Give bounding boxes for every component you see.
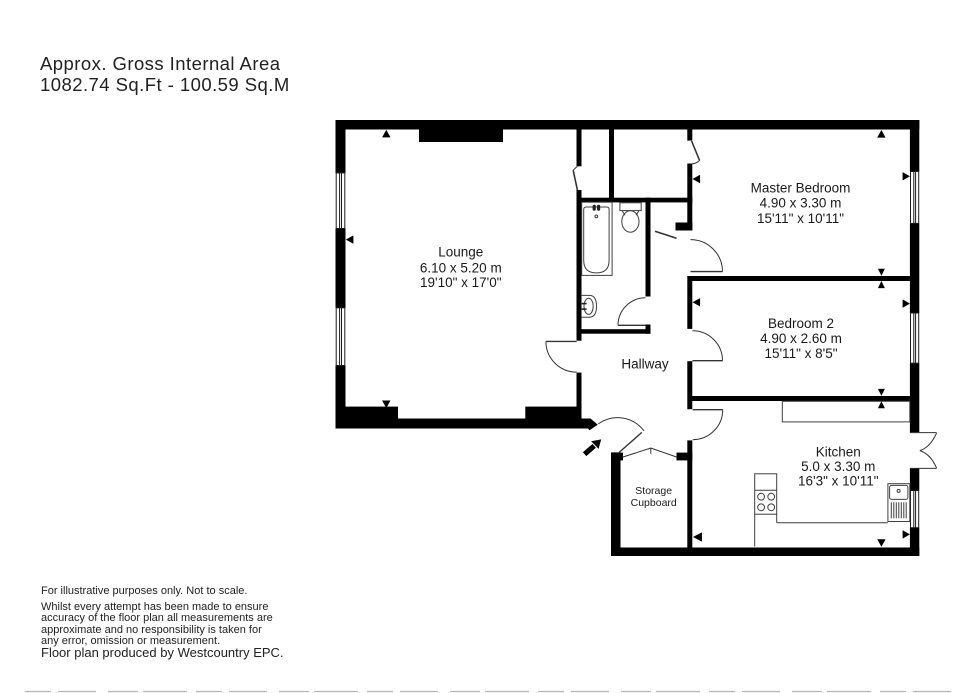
svg-text:4.90 x 3.30 m: 4.90 x 3.30 m <box>760 196 842 211</box>
svg-text:4.90 x 2.60 m: 4.90 x 2.60 m <box>760 331 842 346</box>
svg-text:5.0 x 3.30 m: 5.0 x 3.30 m <box>801 459 875 474</box>
svg-text:16'3" x 10'11": 16'3" x 10'11" <box>798 474 879 489</box>
svg-text:15'11" x 10'11": 15'11" x 10'11" <box>757 211 844 226</box>
svg-text:Storage: Storage <box>635 485 672 497</box>
svg-text:Lounge: Lounge <box>438 244 483 259</box>
svg-text:Master Bedroom: Master Bedroom <box>751 180 851 195</box>
svg-text:Cupboard: Cupboard <box>631 497 677 509</box>
svg-text:Kitchen: Kitchen <box>816 444 861 459</box>
svg-text:19'10" x 17'0": 19'10" x 17'0" <box>420 275 502 290</box>
svg-text:Hallway: Hallway <box>621 357 669 372</box>
svg-text:Bedroom 2: Bedroom 2 <box>768 316 834 331</box>
svg-text:6.10 x 5.20 m: 6.10 x 5.20 m <box>420 261 502 276</box>
svg-text:15'11" x 8'5": 15'11" x 8'5" <box>764 346 837 361</box>
